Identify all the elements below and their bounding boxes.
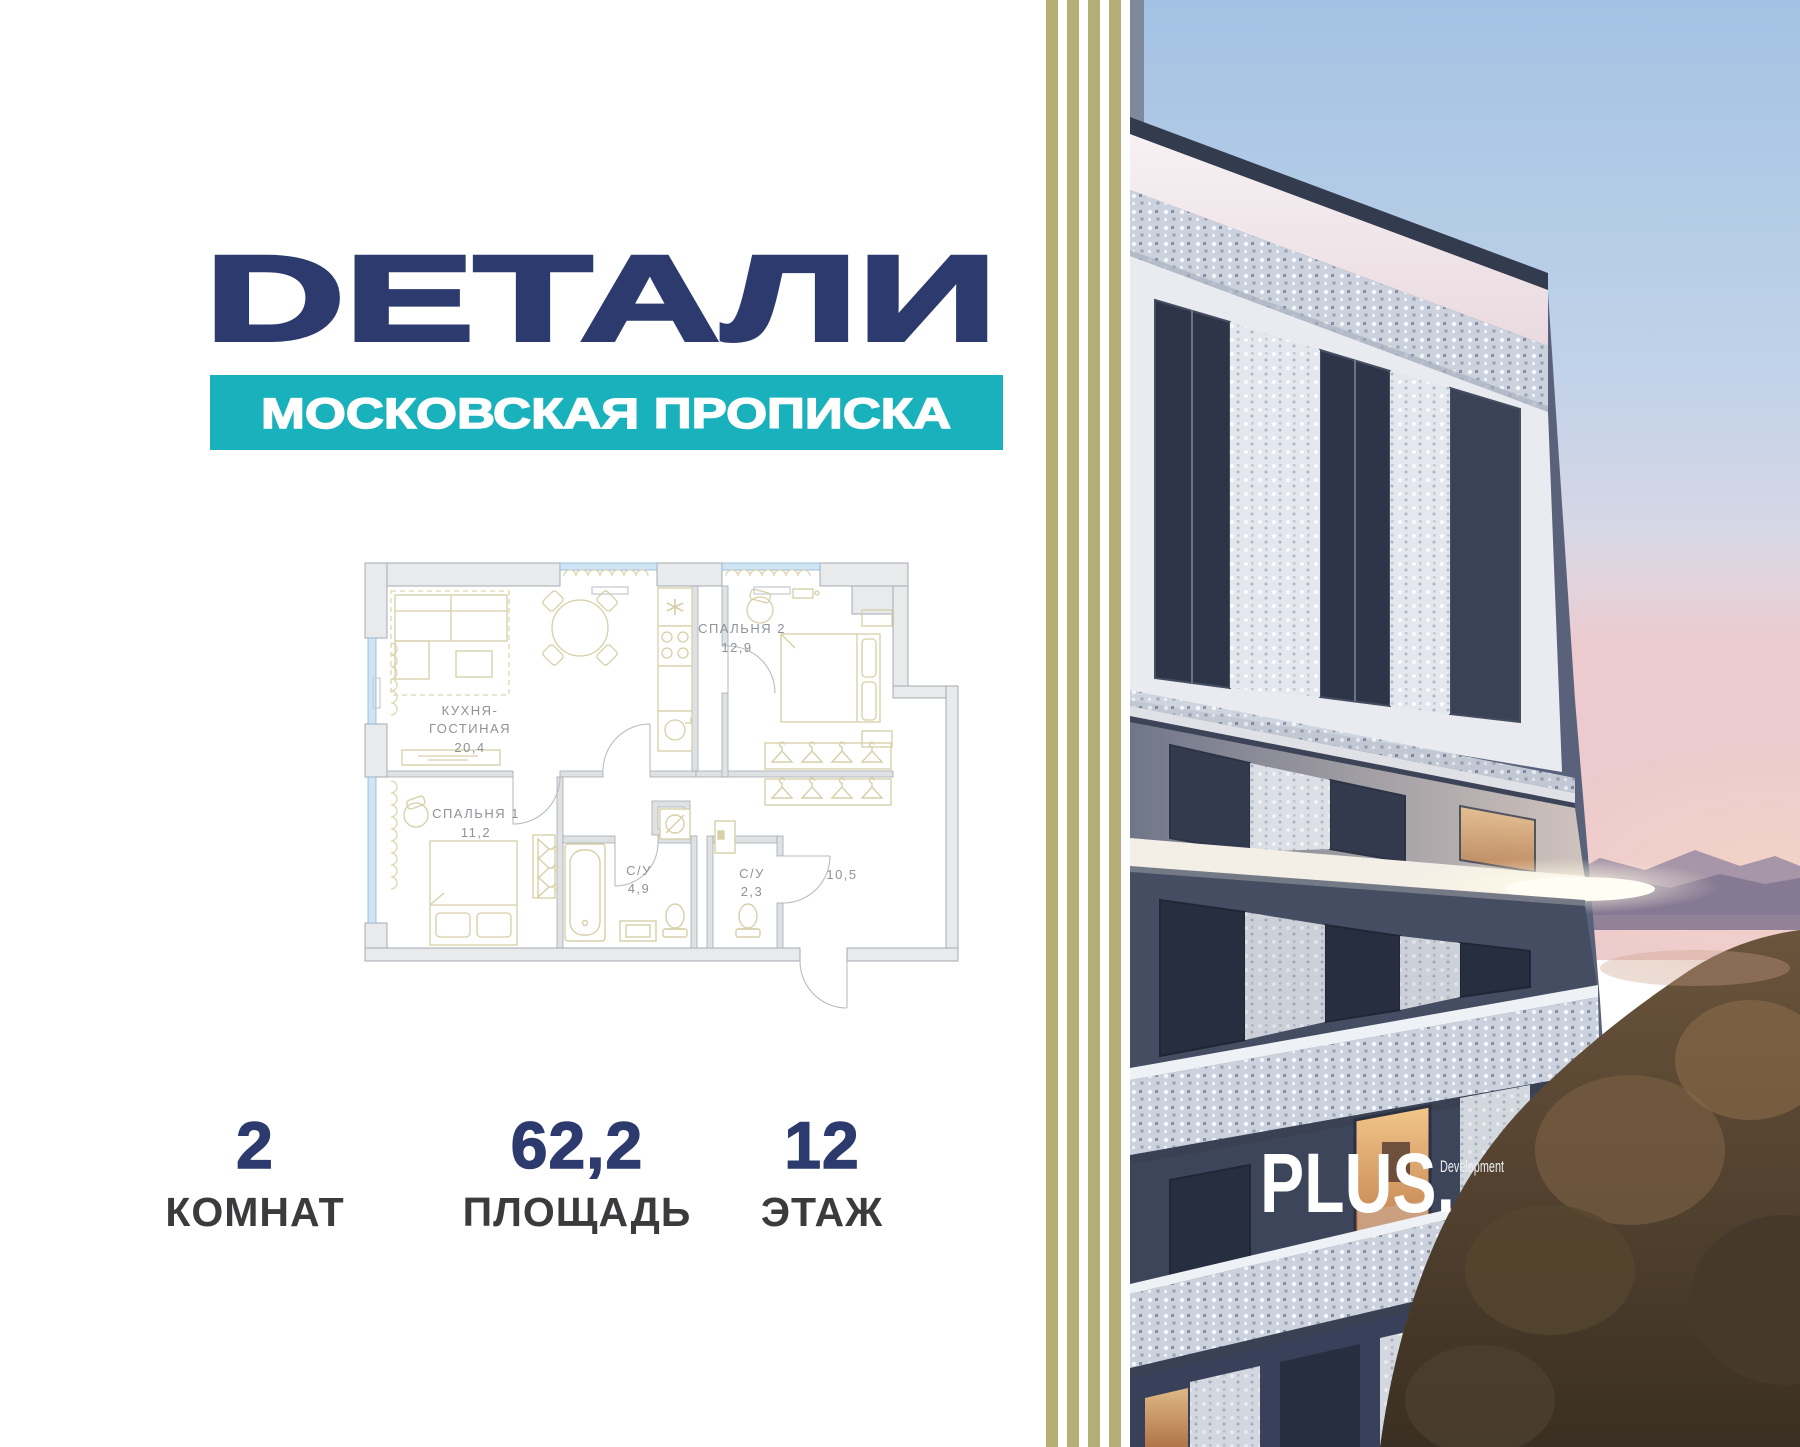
tagline-text: МОСКОВСКАЯ ПРОПИСКА [261, 390, 951, 438]
brand-logo-text: DЕТАЛИ [205, 235, 997, 360]
floor-plan: КУХНЯ- ГОСТИНАЯ 20,4 СПАЛЬНЯ 2 12,9 СПАЛ… [358, 553, 968, 1015]
stat-area-value: 62,2 [460, 1112, 694, 1178]
brand-logo: DЕТАЛИ [205, 235, 1005, 360]
room-area-bedroom1: 11,2 [461, 825, 491, 840]
developer-name: PLUS. [1260, 1136, 1455, 1230]
room-label-bathroom2: С/У [739, 866, 765, 881]
room-area-bathroom2: 2,3 [741, 884, 764, 899]
stripe-bar [1067, 0, 1079, 1447]
room-area-bathroom1: 4,9 [628, 881, 651, 896]
stat-rooms: 2 КОМНАТ [145, 1112, 365, 1233]
stripe-bar [1088, 0, 1100, 1447]
kitchen-appliances [658, 588, 692, 751]
room-label-bedroom1: СПАЛЬНЯ 1 [432, 806, 520, 821]
poster-canvas: DЕТАЛИ МОСКОВСКАЯ ПРОПИСКА [0, 0, 1800, 1447]
stat-area-label: ПЛОЩАДЬ [460, 1192, 694, 1233]
stripe-bar [1046, 0, 1058, 1447]
room-area-hallway: 10,5 [826, 867, 857, 882]
room-label-kitchen-line2: ГОСТИНАЯ [429, 721, 511, 736]
bathroom-fixtures [565, 809, 760, 941]
room-label-bedroom2: СПАЛЬНЯ 2 [698, 621, 786, 636]
room-area-bedroom2: 12,9 [721, 640, 752, 655]
stat-floor-value: 12 [712, 1112, 932, 1178]
stat-floor-label: ЭТАЖ [712, 1192, 932, 1233]
living-room-furniture [391, 590, 618, 765]
stat-floor: 12 ЭТАЖ [712, 1112, 932, 1233]
room-label-kitchen-line1: КУХНЯ- [442, 703, 499, 718]
room-area-kitchen: 20,4 [454, 740, 485, 755]
tagline-banner: МОСКОВСКАЯ ПРОПИСКА [210, 375, 1003, 450]
stat-rooms-value: 2 [145, 1112, 365, 1178]
room-label-bathroom1: С/У [626, 863, 652, 878]
stat-rooms-label: КОМНАТ [145, 1192, 365, 1233]
stat-area: 62,2 ПЛОЩАДЬ [460, 1112, 694, 1233]
building-photo: PLUS. Development [1130, 0, 1800, 1447]
stripe-bar [1109, 0, 1121, 1447]
developer-suffix: Development [1440, 1157, 1504, 1176]
